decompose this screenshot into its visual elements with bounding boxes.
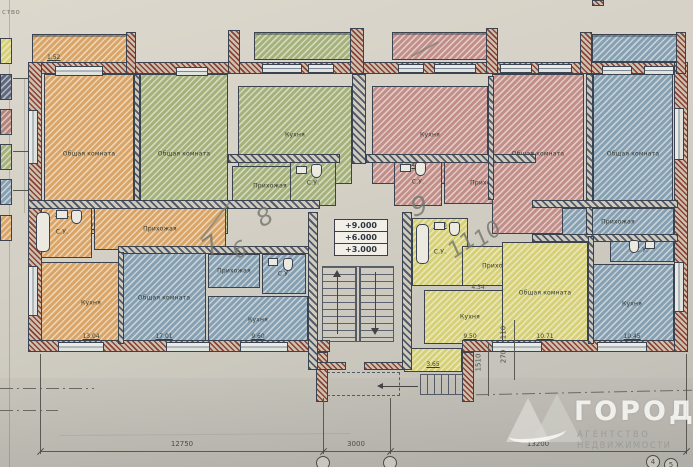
balcony-3: [392, 32, 490, 60]
window-16: [28, 266, 38, 316]
kitchen-4: Кухня10.45: [590, 264, 674, 344]
legend-leader-spine: [24, 78, 25, 213]
wc-5-label: С.У.: [263, 271, 305, 278]
axis-bubble-3: 5: [664, 458, 678, 467]
hall-4-label: Прихожая: [563, 219, 673, 226]
kitchen-5-label: Кухня: [209, 317, 307, 324]
stair-arrow-up-stem: [337, 276, 338, 334]
interior-wall-13: [488, 76, 494, 200]
living-room-4-label: Общая комната: [594, 151, 672, 158]
axis-bubble-2: 4: [646, 455, 660, 467]
balcony-4: [592, 34, 678, 62]
legend-blue-swatch: [0, 179, 12, 205]
balcony-1: 1.52: [32, 34, 128, 64]
sink-icon-12: [645, 241, 655, 249]
exterior-wall-15: [592, 0, 604, 6]
legend-leader-line-1: [13, 151, 29, 152]
interior-wall-3: [28, 200, 320, 209]
wc-icon-8: [283, 258, 293, 271]
window-6: [500, 64, 532, 73]
extension-line-v-1: [323, 398, 324, 454]
living-room-6-label: Общая комната: [503, 290, 587, 297]
stair-flight-0: [322, 266, 356, 342]
stair-divider: [356, 266, 360, 342]
exterior-wall-12: [462, 352, 474, 402]
elevation-mark-3: +3.000: [334, 243, 388, 256]
dimension-value-extra-0: 4.34: [463, 284, 493, 293]
dimension-line-h-0: [40, 451, 686, 452]
entrance-arrow: [382, 386, 418, 387]
window-18: [674, 262, 684, 312]
extension-line-v-4: [514, 320, 515, 380]
kitchen-4-label: Кухня: [591, 301, 673, 308]
interior-wall-0: [134, 74, 140, 204]
living-room-5: Общая комната17.01: [122, 252, 206, 344]
wc-icon-6: [415, 162, 426, 176]
kitchen-5: Кухня9.60: [208, 296, 308, 344]
wc-icon-2: [71, 210, 82, 224]
extension-line-v-5: [488, 344, 489, 396]
interior-wall-5: [366, 154, 536, 163]
window-7: [538, 64, 572, 73]
axis-bubble-1: [383, 456, 397, 467]
legend-red-brown-swatch: [0, 109, 12, 135]
elevation-marks-box: +9.000 +6.000 +3.000: [334, 220, 388, 259]
living-room-5-label: Общая комната: [123, 295, 205, 302]
stair-arrow-down-icon: [371, 328, 379, 335]
window-11: [166, 342, 210, 352]
balcony-1-dim: 1.52: [47, 54, 77, 61]
window-4: [398, 64, 424, 73]
wc-4-label: С.У.: [611, 247, 673, 254]
interior-wall-4: [228, 154, 340, 163]
stair-arrow-up-icon: [333, 270, 341, 277]
exterior-wall-6: [228, 30, 240, 74]
window-1: [176, 67, 208, 76]
extension-line-v-0: [40, 354, 41, 454]
kitchen-5-area: 9.60: [209, 333, 307, 340]
dimension-value-bottom-1: 3000: [326, 440, 386, 449]
sidewalk-dashdot-line-1: [0, 410, 58, 411]
window-5: [434, 64, 476, 73]
wc-3-label: С.У.: [395, 179, 441, 186]
window-9: [644, 66, 674, 75]
legend-leader-line-0: [13, 78, 29, 79]
corner-note-text: ство: [2, 8, 20, 16]
exterior-wall-5: [126, 32, 136, 74]
legend-yellow-swatch: [0, 38, 12, 64]
dimension-value-bottom-0: 12750: [152, 440, 212, 449]
hall-5-label: Прихожая: [209, 268, 259, 275]
window-17: [674, 108, 684, 160]
interior-wall-6: [532, 200, 678, 208]
wc-icon-4: [311, 164, 322, 178]
window-2: [262, 64, 302, 73]
exterior-wall-8: [486, 28, 498, 74]
tub-icon-0: [36, 212, 50, 252]
interior-wall-11: [402, 212, 412, 370]
legend-green-swatch: [0, 144, 12, 170]
stair-arrow-down-stem: [375, 272, 376, 330]
extension-line-v-2: [390, 398, 391, 454]
window-15: [28, 110, 38, 164]
interior-wall-12: [588, 236, 594, 344]
living-room-2-label: Общая комната: [141, 151, 227, 158]
dimension-value-vertical-2: 110: [500, 318, 509, 348]
window-0: [55, 66, 103, 76]
sink-icon-5: [400, 164, 411, 172]
living-room-1-label: Общая комната: [45, 151, 133, 158]
interior-wall-1: [352, 74, 366, 164]
sink-icon-7: [268, 258, 278, 266]
interior-wall-7: [532, 234, 678, 242]
sink-icon-1: [56, 210, 68, 219]
balcony-2: [254, 32, 352, 60]
window-10: [58, 342, 104, 352]
wc-icon-13: [629, 240, 639, 253]
extension-line-v-3: [686, 354, 687, 454]
sink-icon-10: [434, 222, 445, 230]
sink-icon-3: [296, 166, 307, 174]
entry-vestibule: 3.65: [404, 348, 462, 372]
tub-icon-9: [416, 224, 429, 264]
scanned-floorplan-photo: ство +9.000 +6.000 +3.000 ГОРОД АГЕНТСТВ…: [0, 0, 693, 467]
living-room-6-area: 10.71: [503, 333, 587, 340]
hall-4: Прихожая: [562, 208, 674, 236]
dimension-value-vertical-0: 1510: [475, 348, 484, 378]
exterior-wall-9: [580, 32, 592, 74]
entry-vestibule-area: 3.65: [405, 361, 461, 368]
sidewalk-dashdot-line-0: [0, 388, 94, 389]
wc-2-label: С.У.: [291, 180, 335, 187]
window-12: [240, 342, 288, 352]
window-8: [602, 66, 632, 75]
kitchen-2-label: Кухня: [239, 132, 351, 139]
axis-bubble-0: [316, 456, 330, 467]
window-14: [597, 342, 647, 352]
exterior-wall-10: [676, 32, 686, 74]
interior-wall-9: [118, 252, 124, 344]
kitchen-4-area: 10.45: [591, 333, 673, 340]
interior-wall-2: [586, 74, 593, 236]
legend-leader-line-2: [13, 190, 29, 191]
interior-wall-10: [308, 212, 318, 370]
kitchen-3-label: Кухня: [373, 132, 487, 139]
living-room-5-area: 17.01: [123, 333, 205, 340]
legend-navy-swatch: [0, 74, 12, 100]
legend-orange-swatch: [0, 215, 12, 241]
porch-canopy-dashed: [322, 372, 400, 396]
exterior-wall-7: [350, 28, 364, 74]
entrance-arrow-head-icon: [377, 383, 383, 389]
window-3: [308, 64, 334, 73]
